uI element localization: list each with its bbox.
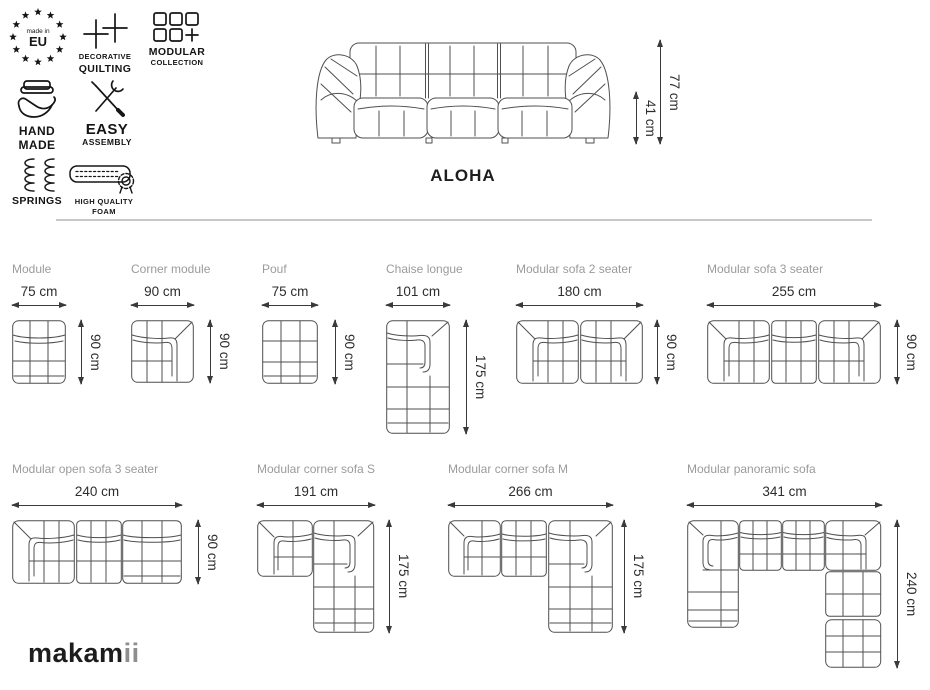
feature-springs: SPRINGS — [8, 158, 66, 207]
module-depth-label: 240 cm — [904, 520, 919, 668]
width-arrow — [448, 505, 613, 506]
feature-label: HAND — [19, 125, 55, 139]
module-title: Module — [12, 262, 51, 276]
quilting-icon — [82, 12, 128, 50]
aloha-sofa-front-view-drawing — [310, 34, 616, 144]
total-height-label: 77 cm — [667, 40, 682, 144]
module-depth-label: 90 cm — [904, 320, 919, 384]
width-arrow — [12, 305, 66, 306]
module-width-label: 180 cm — [516, 284, 643, 299]
width-arrow — [262, 305, 318, 306]
module-title: Pouf — [262, 262, 287, 276]
depth-arrow — [657, 320, 658, 384]
module-depth-label: 175 cm — [473, 320, 488, 434]
brand-logo-main: makam — [28, 638, 124, 668]
module-width-label: 101 cm — [386, 284, 450, 299]
feature-made-in-eu: made in EU — [8, 8, 68, 66]
module-width-label: 90 cm — [131, 284, 194, 299]
total-height-arrow — [660, 40, 661, 144]
sofa-2-seater-top-view-drawing — [516, 320, 643, 384]
width-arrow — [386, 305, 450, 306]
feature-label: COLLECTION — [151, 59, 204, 68]
feature-decorative-quilting: DECORATIVE QUILTING — [76, 12, 134, 75]
width-arrow — [257, 505, 375, 506]
module-width-label: 266 cm — [448, 484, 613, 499]
pouf-top-view-drawing — [262, 320, 318, 384]
module-width-label: 240 cm — [12, 484, 182, 499]
section-divider — [56, 219, 872, 221]
module-depth-label: 175 cm — [396, 520, 411, 633]
module-title: Modular sofa 2 seater — [516, 262, 632, 276]
module-width-label: 341 cm — [687, 484, 882, 499]
seat-height-label: 41 cm — [643, 92, 658, 144]
corner-sofa-s-top-view-drawing — [257, 520, 375, 633]
module-depth-label: 90 cm — [205, 520, 220, 584]
module-width-label: 191 cm — [257, 484, 375, 499]
feature-label: ASSEMBLY — [82, 138, 132, 148]
module-depth-label: 90 cm — [88, 320, 103, 384]
eu-label: EU — [29, 34, 47, 49]
feature-modular-collection: MODULAR COLLECTION — [146, 12, 208, 68]
depth-arrow — [466, 320, 467, 434]
springs-icon — [16, 158, 58, 192]
depth-arrow — [624, 520, 625, 633]
corner-module-top-view-drawing — [131, 320, 194, 383]
product-name: ALOHA — [310, 166, 616, 186]
feature-label: HIGH QUALITY — [75, 198, 134, 207]
depth-arrow — [198, 520, 199, 584]
feature-hand-made: HAND MADE — [8, 80, 66, 153]
feature-label: MADE — [19, 139, 56, 153]
module-title: Corner module — [131, 262, 210, 276]
foam-icon — [69, 160, 139, 195]
sofa-3-seater-top-view-drawing — [707, 320, 881, 384]
module-depth-label: 90 cm — [217, 320, 232, 383]
width-arrow — [131, 305, 194, 306]
module-title: Modular panoramic sofa — [687, 462, 816, 476]
corner-sofa-m-top-view-drawing — [448, 520, 613, 633]
depth-arrow — [897, 520, 898, 668]
module-depth-label: 175 cm — [631, 520, 646, 633]
width-arrow — [707, 305, 881, 306]
width-arrow — [516, 305, 643, 306]
easy-assembly-icon — [87, 78, 127, 118]
depth-arrow — [81, 320, 82, 384]
depth-arrow — [389, 520, 390, 633]
module-title: Chaise longue — [386, 262, 463, 276]
feature-label: MODULAR — [149, 46, 205, 58]
seat-height-arrow — [636, 92, 637, 144]
brand-logo-accent: ii — [124, 638, 140, 668]
made-in-eu-badge-icon: made in EU — [9, 8, 67, 66]
width-arrow — [12, 505, 182, 506]
hand-made-icon — [14, 80, 60, 122]
open-sofa-3-seater-top-view-drawing — [12, 520, 182, 584]
feature-label: EASY — [86, 121, 128, 138]
feature-high-quality-foam: HIGH QUALITY FOAM — [64, 160, 144, 216]
depth-arrow — [335, 320, 336, 384]
feature-label: SPRINGS — [12, 195, 62, 207]
module-title: Modular corner sofa S — [257, 462, 375, 476]
feature-label: QUILTING — [79, 63, 132, 75]
module-top-view-drawing — [12, 320, 66, 384]
depth-arrow — [897, 320, 898, 384]
panoramic-sofa-top-view-drawing — [687, 520, 882, 668]
width-arrow — [687, 505, 882, 506]
product-spec-sheet: made in EU DECORATIVE QUILTING MODULAR C… — [0, 0, 930, 690]
module-depth-label: 90 cm — [342, 320, 357, 384]
module-width-label: 75 cm — [262, 284, 318, 299]
feature-label: FOAM — [92, 208, 116, 217]
brand-logo: makamii — [28, 638, 140, 669]
module-width-label: 255 cm — [707, 284, 881, 299]
module-title: Modular sofa 3 seater — [707, 262, 823, 276]
modular-collection-icon — [153, 12, 201, 43]
module-depth-label: 90 cm — [664, 320, 679, 384]
module-title: Modular open sofa 3 seater — [12, 462, 158, 476]
depth-arrow — [210, 320, 211, 383]
feature-easy-assembly: EASY ASSEMBLY — [76, 78, 138, 148]
feature-label: DECORATIVE — [79, 53, 132, 62]
module-width-label: 75 cm — [12, 284, 66, 299]
module-title: Modular corner sofa M — [448, 462, 568, 476]
chaise-longue-top-view-drawing — [386, 320, 450, 434]
